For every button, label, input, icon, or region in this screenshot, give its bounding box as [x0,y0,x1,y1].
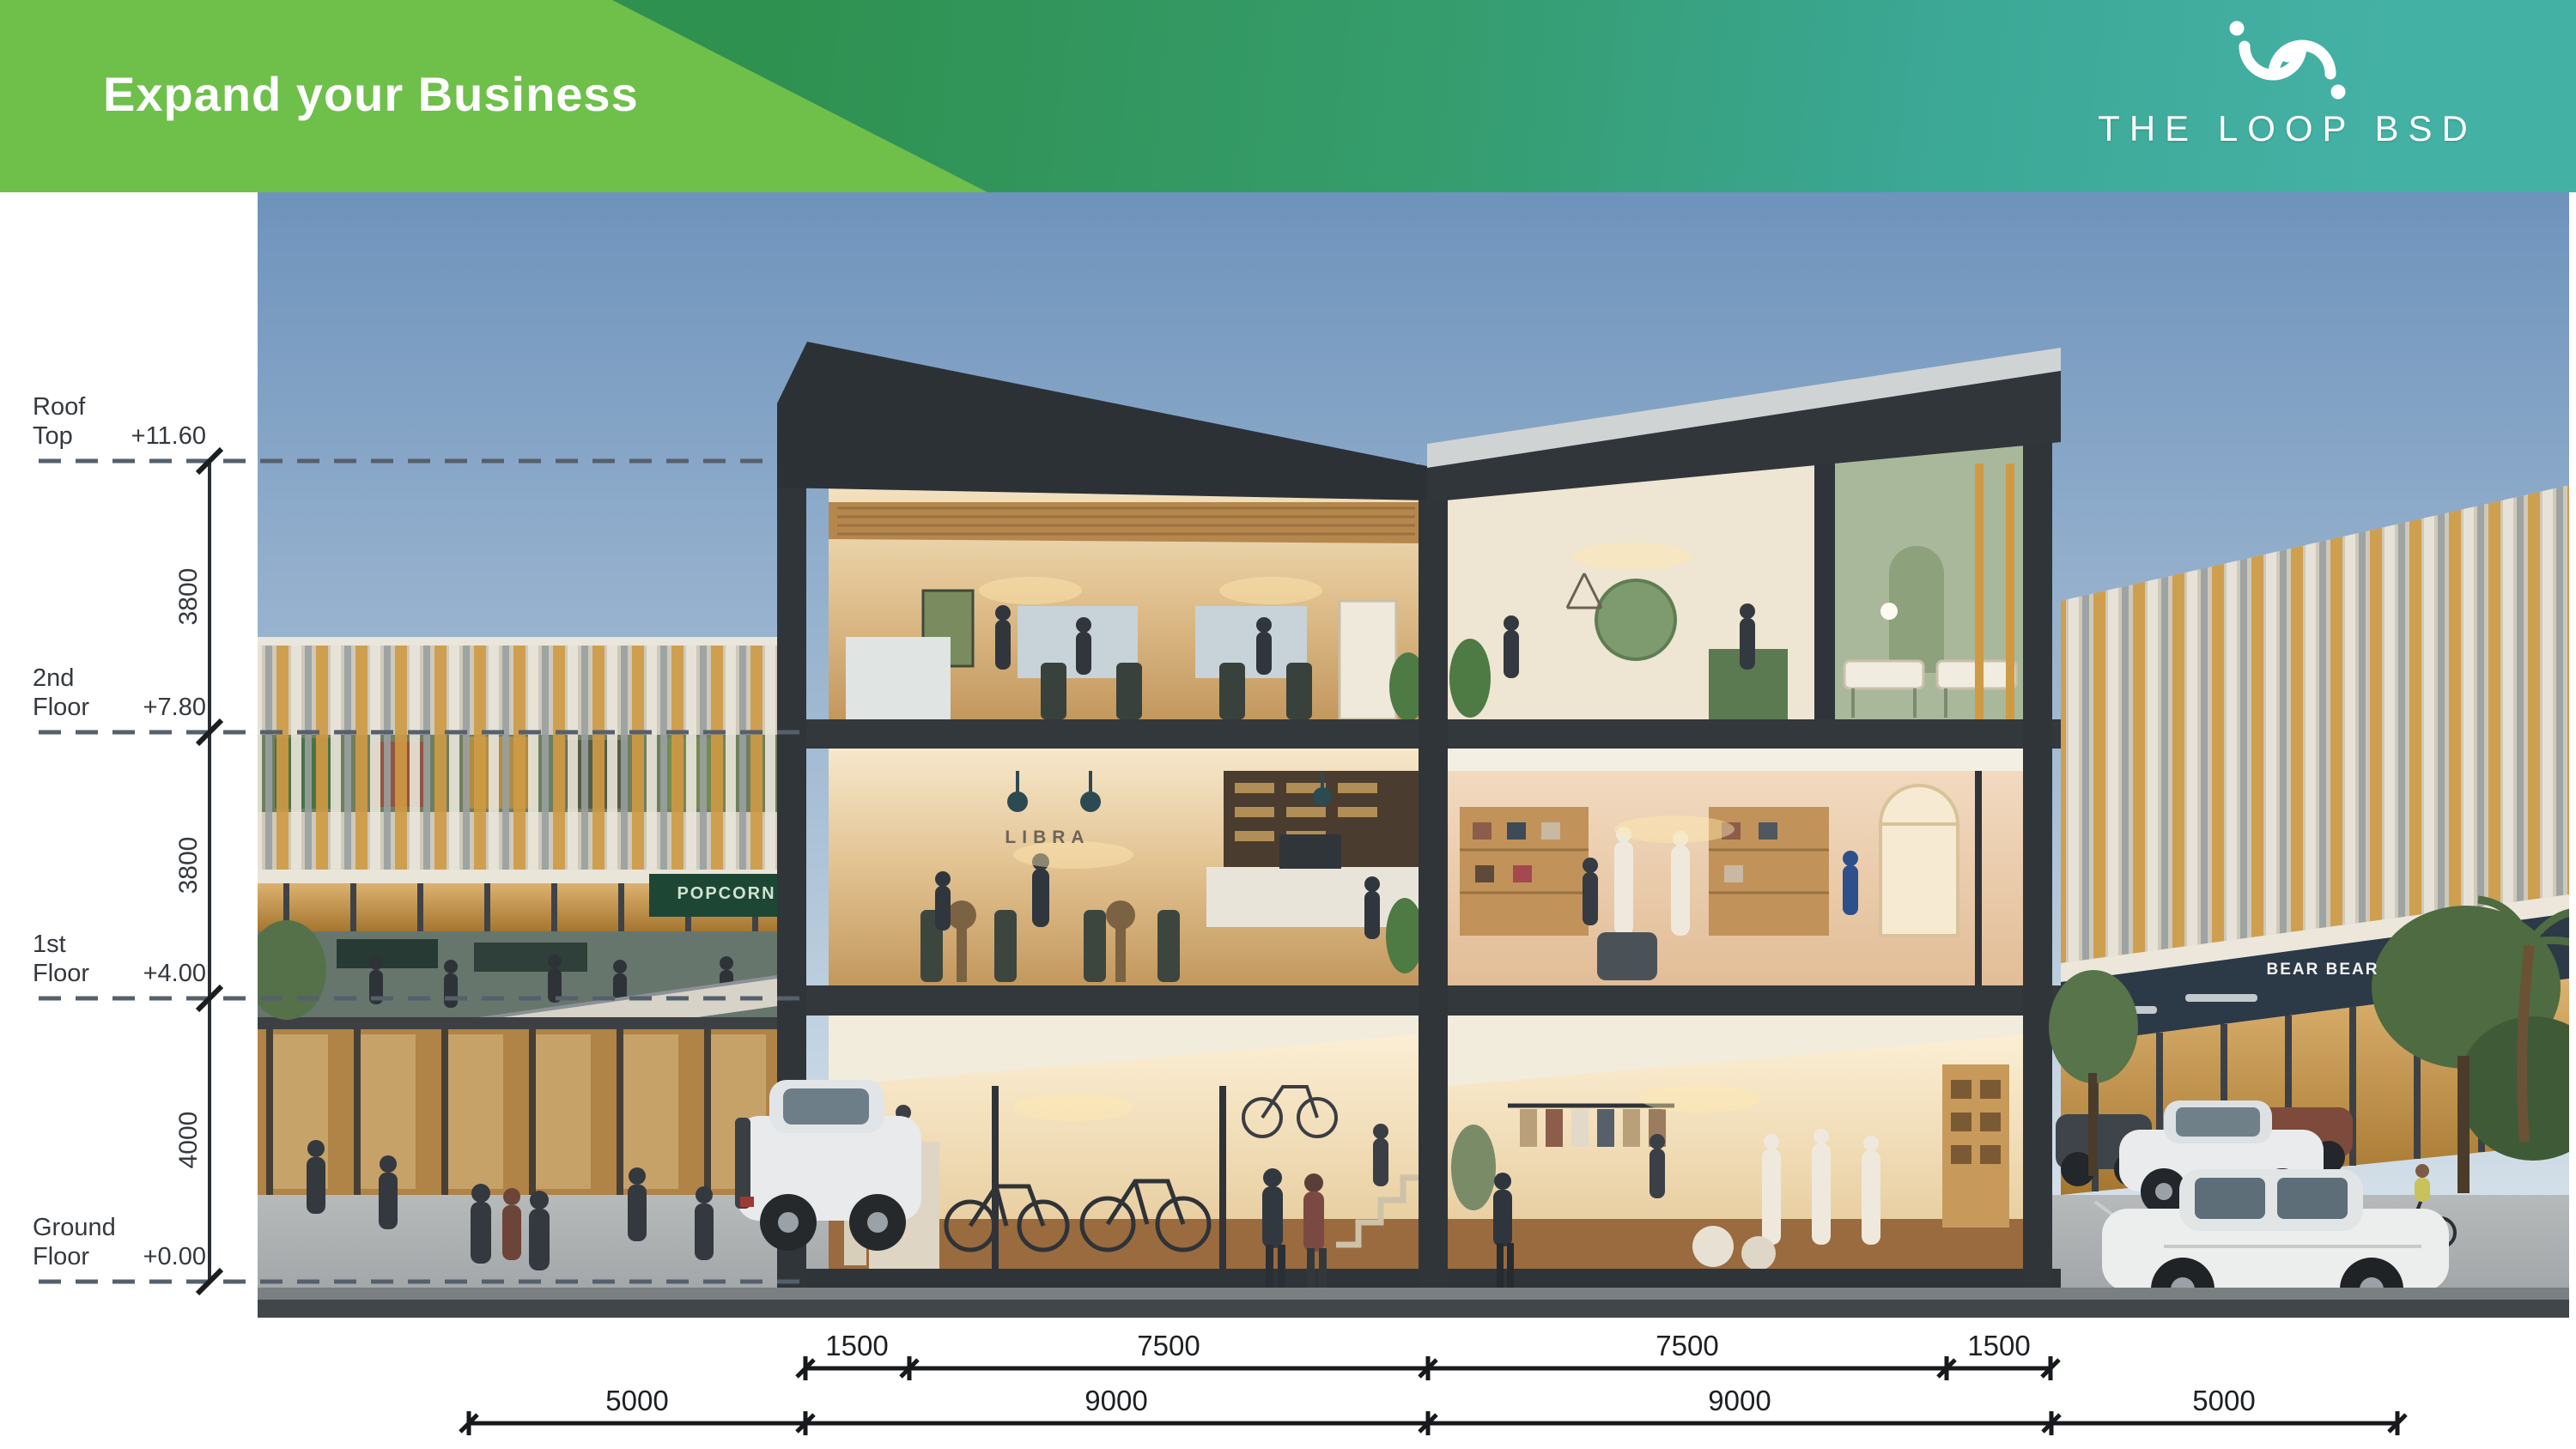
level-name: 2nd [33,664,206,693]
horizontal-dimension-label: 9000 [1708,1385,1771,1417]
horizontal-dimension-label: 5000 [605,1385,668,1417]
level-name: Roof [33,392,206,421]
level-elevation: +7.80 [143,693,206,722]
vertical-dimension-label: 3800 [174,568,204,626]
level-elevation: +0.00 [143,1242,206,1271]
level-name-2: Top [33,421,73,451]
level-label-roof-top: Roof Top +11.60 [33,392,206,451]
level-name: Ground [33,1213,206,1242]
vertical-dimension-label: 3800 [174,837,204,894]
horizontal-dimension-label: 1500 [1967,1330,2030,1362]
vertical-dimension-label: 4000 [174,1112,204,1169]
level-name-2: Floor [33,959,89,988]
horizontal-dimension-label: 9000 [1084,1385,1147,1417]
level-elevation: +4.00 [143,959,206,988]
level-elevation: +11.60 [131,421,206,451]
horizontal-dimension-label: 1500 [825,1330,888,1362]
level-name-2: Floor [33,693,89,722]
level-name: 1st [33,930,206,959]
horizontal-dimension-label: 7500 [1137,1330,1200,1362]
level-label-2nd-floor: 2nd Floor +7.80 [33,664,206,722]
level-name-2: Floor [33,1242,89,1271]
slide: Expand your Business THE LOOP BSD [0,0,2576,1449]
level-label-ground-floor: Ground Floor +0.00 [33,1213,206,1271]
horizontal-dimension-label: 5000 [2192,1385,2255,1417]
level-label-1st-floor: 1st Floor +4.00 [33,930,206,988]
horizontal-dimension-label: 7500 [1656,1330,1718,1362]
dimension-annotations [0,0,2576,1449]
